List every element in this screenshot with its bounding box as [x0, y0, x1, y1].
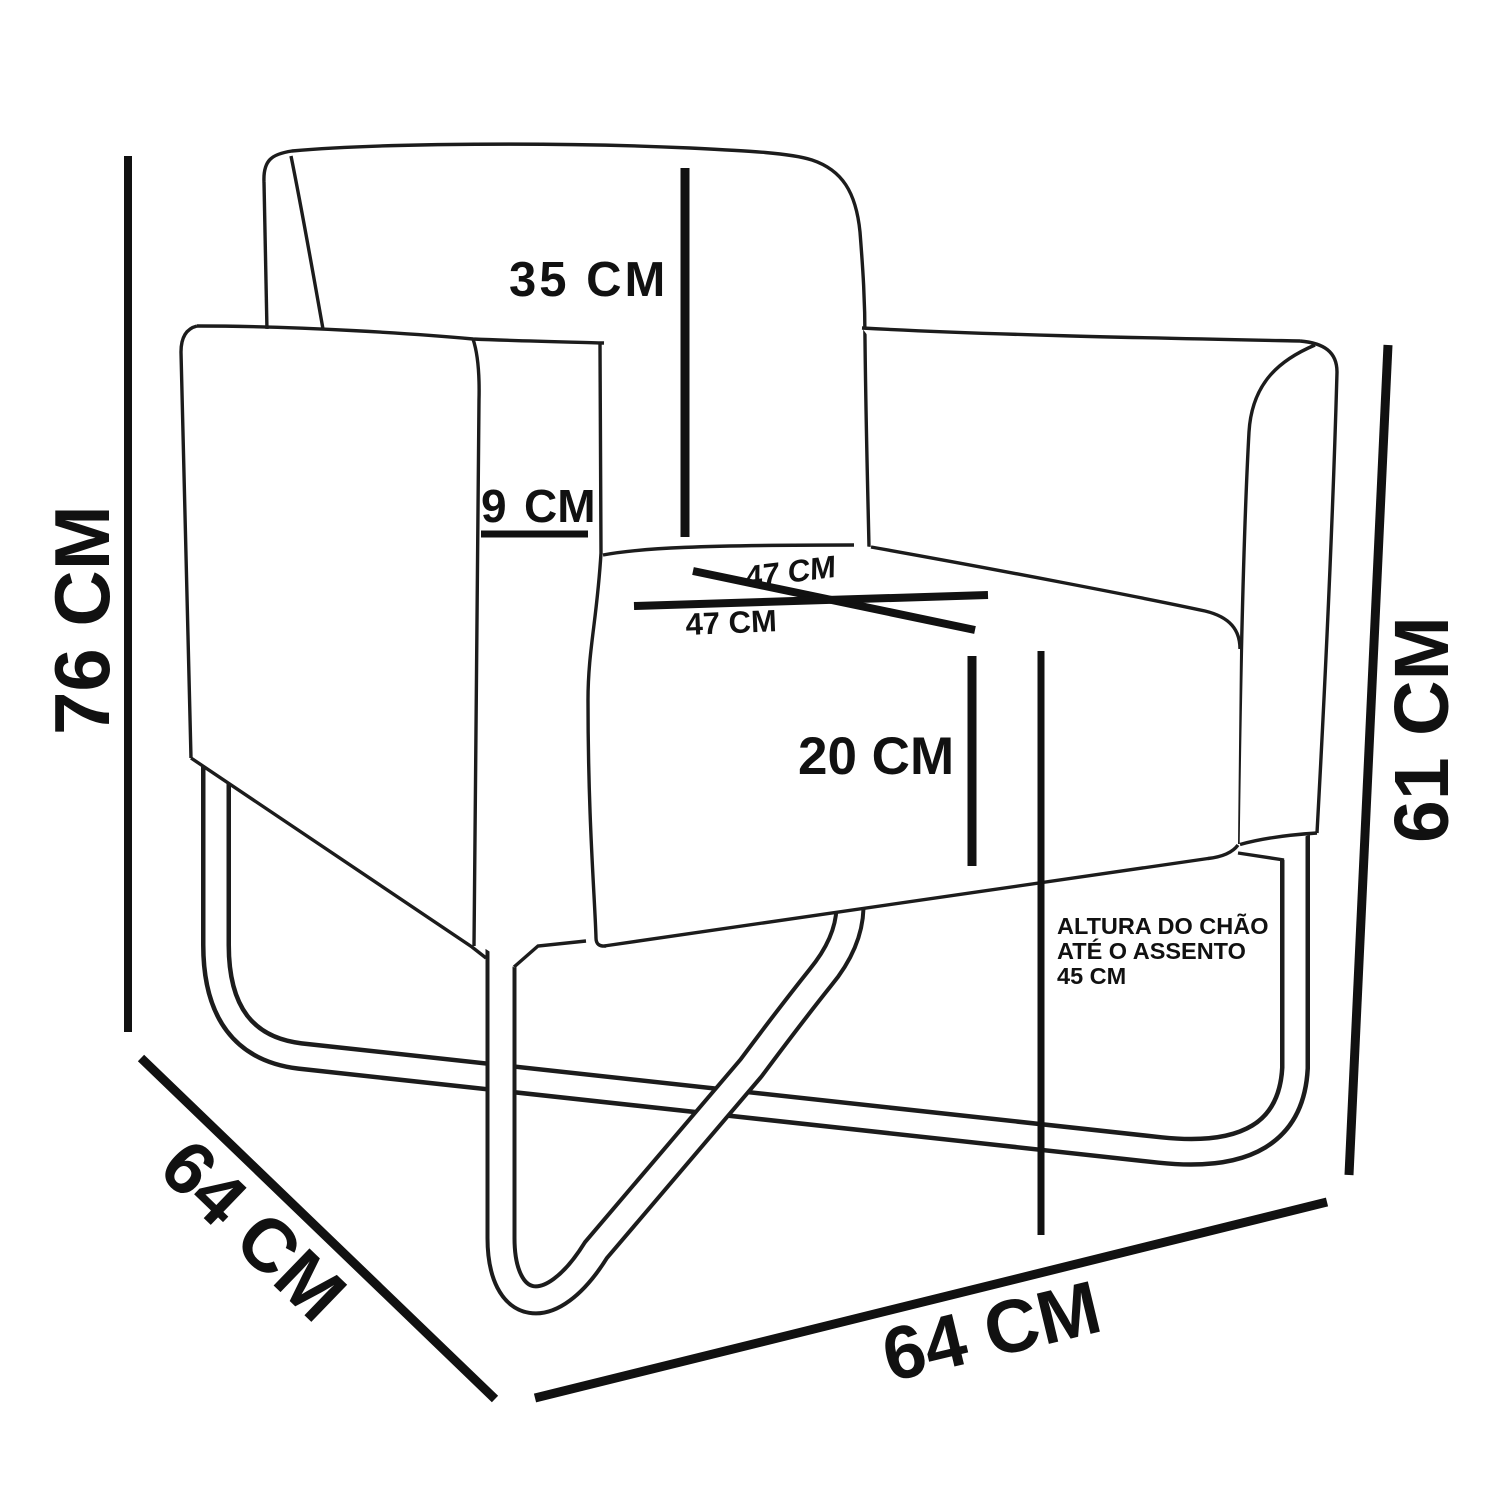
- svg-text:47 CM: 47 CM: [685, 603, 778, 642]
- svg-text:76 CM: 76 CM: [38, 505, 126, 735]
- svg-text:45 CM: 45 CM: [1057, 963, 1126, 989]
- svg-text:CM: CM: [524, 480, 596, 532]
- svg-text:ALTURA DO CHÃO: ALTURA DO CHÃO: [1057, 912, 1268, 939]
- svg-text:9: 9: [481, 480, 507, 532]
- svg-text:20 CM: 20 CM: [798, 727, 954, 786]
- svg-text:61 CM: 61 CM: [1379, 616, 1465, 843]
- svg-text:35 CM: 35 CM: [509, 253, 668, 307]
- svg-text:ATÉ O ASSENTO: ATÉ O ASSENTO: [1057, 937, 1246, 964]
